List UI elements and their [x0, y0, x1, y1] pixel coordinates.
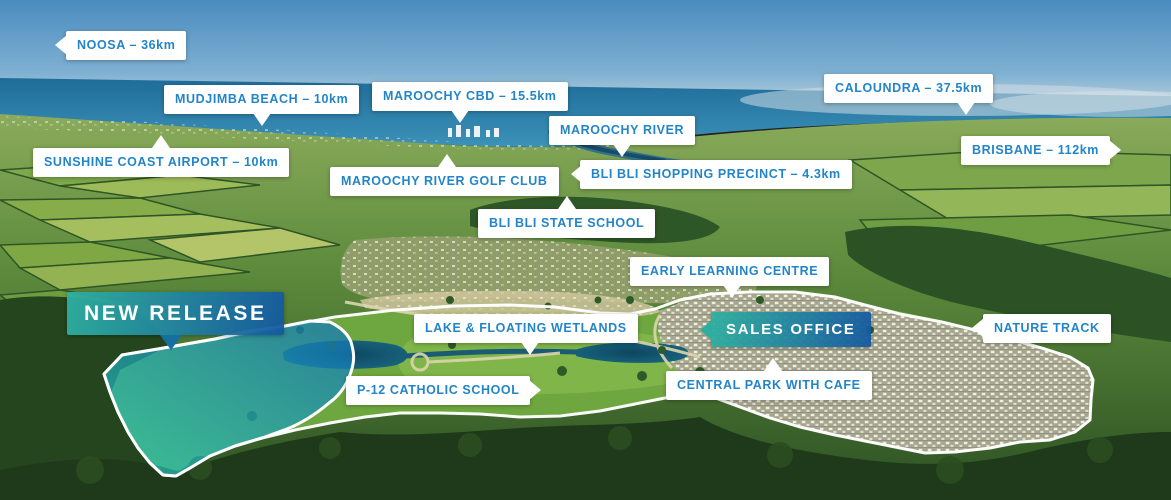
callout-maroochy-river-golf-club-label: MAROOCHY RIVER GOLF CLUB: [341, 174, 548, 188]
callout-mudjimba-beach-label: MUDJIMBA BEACH – 10km: [175, 92, 348, 106]
callout-early-learning-centre: EARLY LEARNING CENTRE: [630, 257, 829, 286]
callout-bli-bli-shopping-precinct: BLI BLI SHOPPING PRECINCT – 4.3km: [580, 160, 852, 189]
aerial-photo-background: [0, 0, 1171, 500]
callout-maroochy-river-label: MAROOCHY RIVER: [560, 123, 684, 137]
callout-maroochy-cbd: MAROOCHY CBD – 15.5km: [372, 82, 568, 111]
callout-brisbane-label: BRISBANE – 112km: [972, 143, 1099, 157]
aerial-map: NOOSA – 36km MUDJIMBA BEACH – 10km MAROO…: [0, 0, 1171, 500]
callout-lake-floating-wetlands-label: LAKE & FLOATING WETLANDS: [425, 321, 627, 335]
callout-p12-catholic-school: P-12 CATHOLIC SCHOOL: [346, 376, 530, 405]
callout-sunshine-coast-airport: SUNSHINE COAST AIRPORT – 10km: [33, 148, 289, 177]
callout-mudjimba-beach: MUDJIMBA BEACH – 10km: [164, 85, 359, 114]
callout-nature-track-label: NATURE TRACK: [994, 321, 1100, 335]
callout-bli-bli-state-school: BLI BLI STATE SCHOOL: [478, 209, 655, 238]
callout-central-park-with-cafe-label: CENTRAL PARK WITH CAFE: [677, 378, 861, 392]
callout-noosa-label: NOOSA – 36km: [77, 38, 175, 52]
callout-new-release: NEW RELEASE: [67, 292, 284, 335]
callout-p12-catholic-school-label: P-12 CATHOLIC SCHOOL: [357, 383, 519, 397]
callout-new-release-label: NEW RELEASE: [84, 302, 267, 325]
callout-caloundra: CALOUNDRA – 37.5km: [824, 74, 993, 103]
callout-maroochy-river-golf-club: MAROOCHY RIVER GOLF CLUB: [330, 167, 559, 196]
callout-central-park-with-cafe: CENTRAL PARK WITH CAFE: [666, 371, 872, 400]
callout-brisbane: BRISBANE – 112km: [961, 136, 1110, 165]
callout-sales-office: SALES OFFICE: [711, 312, 871, 347]
callout-noosa: NOOSA – 36km: [66, 31, 186, 60]
callout-bli-bli-state-school-label: BLI BLI STATE SCHOOL: [489, 216, 644, 230]
callout-sunshine-coast-airport-label: SUNSHINE COAST AIRPORT – 10km: [44, 155, 278, 169]
callout-maroochy-cbd-label: MAROOCHY CBD – 15.5km: [383, 89, 557, 103]
callout-early-learning-centre-label: EARLY LEARNING CENTRE: [641, 264, 818, 278]
callout-lake-floating-wetlands: LAKE & FLOATING WETLANDS: [414, 314, 638, 343]
callout-maroochy-river: MAROOCHY RIVER: [549, 116, 695, 145]
callout-bli-bli-shopping-precinct-label: BLI BLI SHOPPING PRECINCT – 4.3km: [591, 167, 841, 181]
callout-sales-office-label: SALES OFFICE: [726, 321, 856, 338]
callout-caloundra-label: CALOUNDRA – 37.5km: [835, 81, 982, 95]
callout-nature-track: NATURE TRACK: [983, 314, 1111, 343]
